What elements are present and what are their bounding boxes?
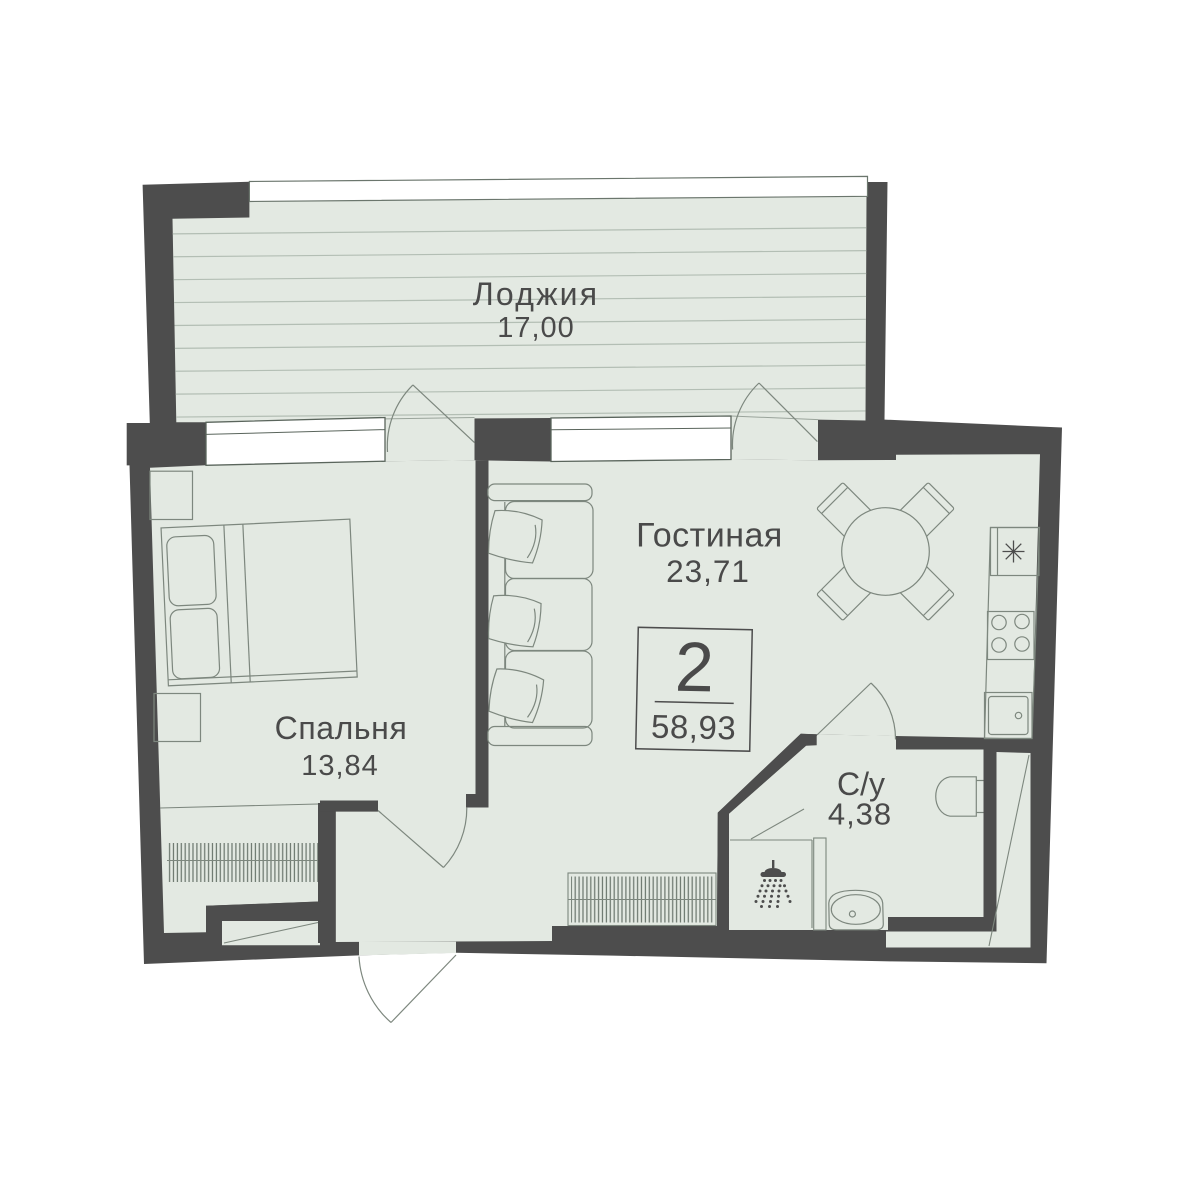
svg-text:2: 2 [674, 628, 715, 707]
svg-text:Гостиная: Гостиная [636, 517, 783, 555]
svg-text:Лоджия: Лоджия [473, 276, 600, 312]
svg-text:4,38: 4,38 [828, 797, 892, 832]
svg-text:58,93: 58,93 [651, 708, 737, 747]
svg-text:17,00: 17,00 [497, 312, 575, 344]
svg-text:Спальня: Спальня [275, 710, 408, 746]
svg-text:13,84: 13,84 [301, 750, 379, 782]
svg-text:23,71: 23,71 [666, 553, 750, 589]
